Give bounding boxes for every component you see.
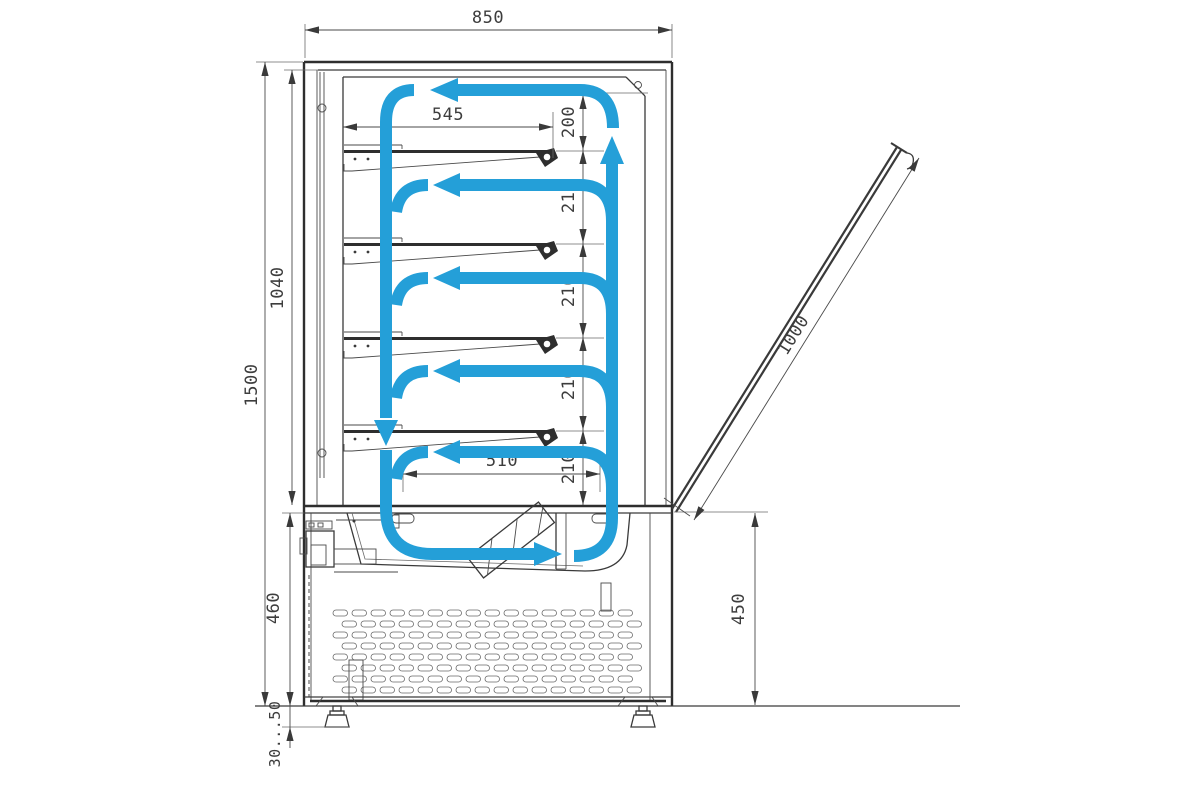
grille-slot	[475, 665, 490, 671]
grille-slot	[352, 676, 367, 682]
grille-slot	[380, 621, 395, 627]
grille-slot	[589, 665, 604, 671]
grille-slot	[618, 610, 633, 616]
dim-arrowhead	[286, 692, 293, 706]
grille-slot	[513, 621, 528, 627]
grille-slot	[333, 632, 348, 638]
dim-arrowhead	[579, 136, 586, 150]
grille-slot	[409, 654, 424, 660]
adjustable-feet	[325, 706, 655, 727]
grille-slot	[608, 621, 623, 627]
dim-arrowhead	[579, 229, 586, 243]
grille-slot	[333, 654, 348, 660]
grille-slot	[599, 654, 614, 660]
technical-drawing-page: 850 545 510 200 210 210 210 210 1500 104…	[0, 0, 1200, 800]
dim-arrowhead	[579, 150, 586, 164]
grille-slot	[485, 654, 500, 660]
grille-slot	[532, 621, 547, 627]
dim-arrowhead	[288, 70, 295, 84]
grille-slot	[551, 621, 566, 627]
airflow-duct	[460, 185, 612, 221]
grille-slot	[589, 643, 604, 649]
grille-slot	[390, 610, 405, 616]
airflow-duct	[458, 90, 613, 128]
grille-slot	[361, 621, 376, 627]
dim-arrowhead	[261, 62, 268, 76]
airflow-duct	[460, 452, 612, 488]
grille-slot	[561, 632, 576, 638]
grille-slot	[561, 654, 576, 660]
dim-arrowhead	[343, 123, 357, 130]
grille-slot	[494, 643, 509, 649]
dimension-arrowheads	[261, 26, 919, 741]
dim-arrowhead	[751, 691, 758, 705]
grille-slot	[513, 643, 528, 649]
grille-slot	[485, 610, 500, 616]
dimension-door-length: 1000	[664, 158, 919, 520]
dim-arrowhead	[579, 430, 586, 444]
grille-slot	[570, 665, 585, 671]
dimension-base-rear-height: 450	[674, 512, 768, 705]
adjustable-foot	[325, 706, 349, 727]
airflow-duct	[460, 371, 612, 407]
dim-arrowhead	[288, 491, 295, 505]
grille-slot	[466, 632, 481, 638]
grille-slot	[561, 610, 576, 616]
dim-label-1040: 1040	[268, 267, 288, 310]
grille-slot	[342, 621, 357, 627]
grille-slot	[475, 687, 490, 693]
dim-arrowhead	[539, 123, 553, 130]
grille-slot	[380, 665, 395, 671]
grille-slot	[352, 632, 367, 638]
dim-arrowhead	[579, 337, 586, 351]
dim-arrowhead	[658, 26, 672, 33]
grille-slot	[551, 687, 566, 693]
grille-slot	[618, 654, 633, 660]
grille-slot	[542, 654, 557, 660]
dim-arrowhead	[305, 26, 319, 33]
dimension-base-height: 460	[264, 513, 304, 706]
dim-label-1500: 1500	[242, 364, 262, 407]
grille-slot	[570, 687, 585, 693]
dim-arrowhead	[286, 727, 293, 741]
grille-slot	[608, 687, 623, 693]
grille-slot	[504, 610, 519, 616]
grille-slot	[399, 687, 414, 693]
dim-label-850: 850	[472, 8, 504, 28]
grille-slot	[333, 610, 348, 616]
grille-slot	[485, 676, 500, 682]
grille-slot	[532, 643, 547, 649]
grille-slot	[504, 632, 519, 638]
grille-slot	[523, 676, 538, 682]
grille-slot	[580, 676, 595, 682]
dim-label-460: 460	[264, 592, 284, 624]
grille-slot	[627, 687, 642, 693]
adjustable-foot	[631, 706, 655, 727]
ventilation-grille	[333, 610, 642, 693]
grille-slot	[399, 643, 414, 649]
grille-slot	[475, 621, 490, 627]
grille-slot	[352, 654, 367, 660]
grille-slot	[333, 676, 348, 682]
grille-slot	[456, 621, 471, 627]
grille-slot	[409, 676, 424, 682]
grille-slot	[447, 610, 462, 616]
dim-label-450: 450	[729, 593, 749, 625]
grille-slot	[627, 643, 642, 649]
grille-slot	[523, 632, 538, 638]
airflow-duct	[396, 185, 428, 212]
grille-slot	[428, 654, 443, 660]
grille-slot	[570, 621, 585, 627]
grille-slot	[371, 632, 386, 638]
airflow-arrowhead	[600, 136, 624, 164]
grille-slot	[523, 654, 538, 660]
grille-slot	[447, 632, 462, 638]
grille-slot	[532, 665, 547, 671]
grille-slot	[418, 665, 433, 671]
grille-slot	[409, 610, 424, 616]
grille-slot	[627, 621, 642, 627]
grille-slot	[542, 610, 557, 616]
grille-slot	[494, 665, 509, 671]
airflow-duct	[574, 164, 612, 556]
grille-slot	[494, 621, 509, 627]
grille-slot	[485, 632, 500, 638]
grille-slot	[447, 654, 462, 660]
grille-slot	[580, 610, 595, 616]
grille-slot	[456, 665, 471, 671]
grille-slot	[456, 643, 471, 649]
dim-label-30-50: 30...50	[266, 701, 284, 768]
grille-slot	[504, 676, 519, 682]
grille-slot	[580, 654, 595, 660]
dim-arrowhead	[579, 416, 586, 430]
grille-slot	[371, 610, 386, 616]
dim-arrowhead	[286, 513, 293, 527]
airflow-duct	[396, 371, 428, 398]
grille-slot	[342, 643, 357, 649]
grille-slot	[589, 687, 604, 693]
dim-arrowhead	[403, 470, 417, 477]
dim-arrowhead	[751, 513, 758, 527]
airflow-arrowhead	[433, 266, 460, 290]
dimension-shelf-spacing-chain: 200 210 210 210 210	[559, 95, 583, 505]
grille-slot	[428, 632, 443, 638]
airflow-duct	[460, 278, 612, 314]
grille-slot	[513, 665, 528, 671]
grille-slot	[437, 643, 452, 649]
grille-slot	[466, 654, 481, 660]
grille-slot	[542, 676, 557, 682]
grille-slot	[437, 621, 452, 627]
grille-slot	[475, 643, 490, 649]
grille-slot	[551, 665, 566, 671]
grille-slot	[532, 687, 547, 693]
grille-slot	[504, 654, 519, 660]
grille-slot	[456, 687, 471, 693]
dim-arrowhead	[579, 491, 586, 505]
grille-slot	[599, 632, 614, 638]
grille-slot	[589, 621, 604, 627]
grille-slot	[551, 643, 566, 649]
grille-slot	[523, 610, 538, 616]
grille-slot	[428, 676, 443, 682]
grille-slot	[390, 654, 405, 660]
grille-slot	[399, 665, 414, 671]
grille-slot	[608, 665, 623, 671]
grille-slot	[466, 676, 481, 682]
grille-slot	[561, 676, 576, 682]
dim-arrowhead	[586, 470, 600, 477]
grille-slot	[513, 687, 528, 693]
grille-slot	[466, 610, 481, 616]
airflow-arrowhead	[534, 542, 562, 566]
display-case-section-drawing: 850 545 510 200 210 210 210 210 1500 104…	[0, 0, 1200, 800]
dim-label-545: 545	[432, 105, 464, 125]
dimension-overall-width: 850	[305, 8, 672, 58]
grille-slot	[437, 687, 452, 693]
grille-slot	[599, 676, 614, 682]
grille-slot	[437, 665, 452, 671]
grille-slot	[390, 632, 405, 638]
grille-slot	[580, 632, 595, 638]
grille-slot	[418, 687, 433, 693]
grille-slot	[399, 621, 414, 627]
grille-slot	[380, 643, 395, 649]
airflow-arrowhead	[433, 359, 460, 383]
grille-slot	[409, 632, 424, 638]
grille-slot	[447, 676, 462, 682]
airflow-duct	[396, 278, 428, 305]
grille-slot	[361, 643, 376, 649]
grille-slot	[618, 676, 633, 682]
airflow-arrowhead	[430, 78, 458, 102]
grille-slot	[352, 610, 367, 616]
grille-slot	[371, 676, 386, 682]
grille-slot	[608, 643, 623, 649]
grille-slot	[618, 632, 633, 638]
dim-arrowhead	[579, 243, 586, 257]
grille-slot	[542, 632, 557, 638]
grille-slot	[371, 654, 386, 660]
grille-slot	[494, 687, 509, 693]
grille-slot	[428, 610, 443, 616]
grille-slot	[627, 665, 642, 671]
dimension-chamber-height: 1040	[268, 70, 318, 505]
grille-slot	[380, 687, 395, 693]
dim-label-200: 200	[559, 106, 579, 138]
grille-slot	[418, 643, 433, 649]
grille-slot	[390, 676, 405, 682]
dim-arrowhead	[694, 506, 704, 520]
dim-arrowhead	[579, 323, 586, 337]
grille-slot	[418, 621, 433, 627]
dim-arrowhead	[579, 95, 586, 109]
grille-slot	[570, 643, 585, 649]
airflow-arrowhead	[433, 173, 460, 197]
